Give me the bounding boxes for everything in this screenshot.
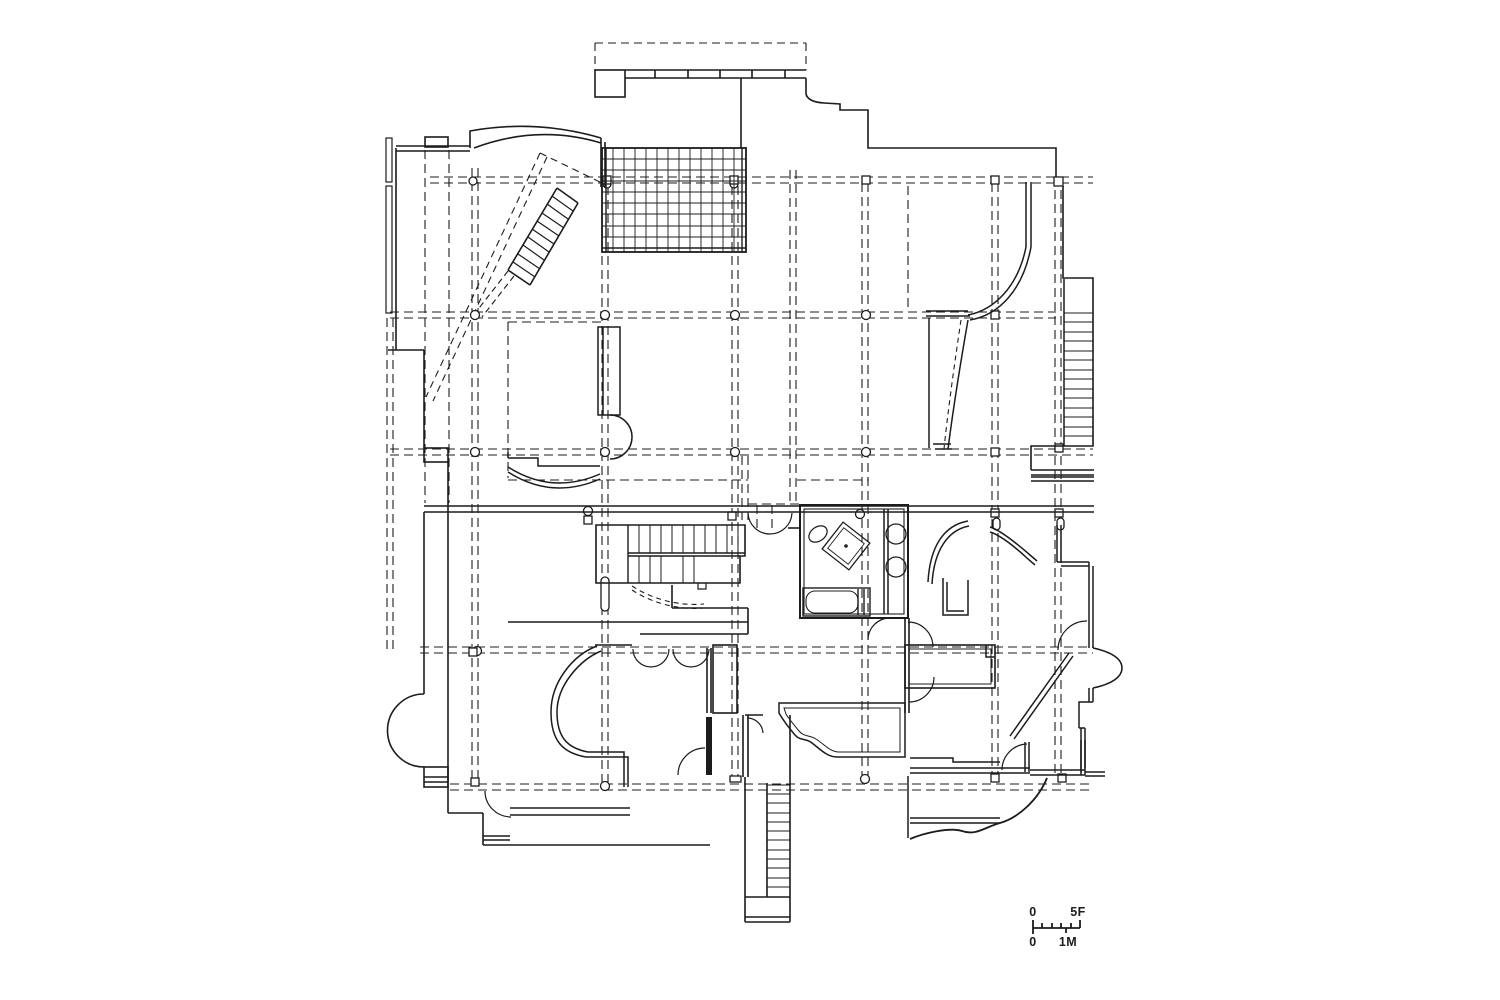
structural-grid xyxy=(387,43,1093,790)
toilet-fixture xyxy=(886,557,906,577)
right-exterior-stair xyxy=(1064,279,1093,446)
scale-feet-max: 5F xyxy=(1070,905,1086,919)
bathtub xyxy=(803,588,870,616)
scale-meters-max: 1M xyxy=(1059,935,1077,949)
curved-walls xyxy=(551,521,1122,839)
sink-fixture xyxy=(886,524,906,544)
basin-fixture xyxy=(806,523,830,546)
upper-floor-walls xyxy=(508,182,1031,488)
semicircular-bay xyxy=(387,694,424,767)
central-stair xyxy=(596,525,745,589)
diagonal-stair xyxy=(508,188,578,285)
floor-plan-drawing: 0 5F 0 1M xyxy=(0,0,1500,1000)
wedge-wall xyxy=(1010,653,1073,739)
perimeter-walls xyxy=(386,70,1094,845)
scale-bar: 0 5F 0 1M xyxy=(1029,905,1086,949)
door-swings xyxy=(485,513,1087,817)
door-swing xyxy=(610,415,632,459)
bathroom xyxy=(800,505,908,618)
scale-meters-zero: 0 xyxy=(1029,935,1036,949)
poche-wall xyxy=(706,717,712,775)
roof-trellis xyxy=(602,148,746,252)
lower-stair-tower xyxy=(745,715,790,922)
kitchen-counter xyxy=(905,645,995,688)
scale-feet-zero: 0 xyxy=(1029,905,1036,919)
freeform-bulge xyxy=(1093,648,1122,688)
wavy-terrace-wall xyxy=(910,778,1047,839)
floor-plan-sheet: 0 5F 0 1M xyxy=(0,0,1500,1000)
